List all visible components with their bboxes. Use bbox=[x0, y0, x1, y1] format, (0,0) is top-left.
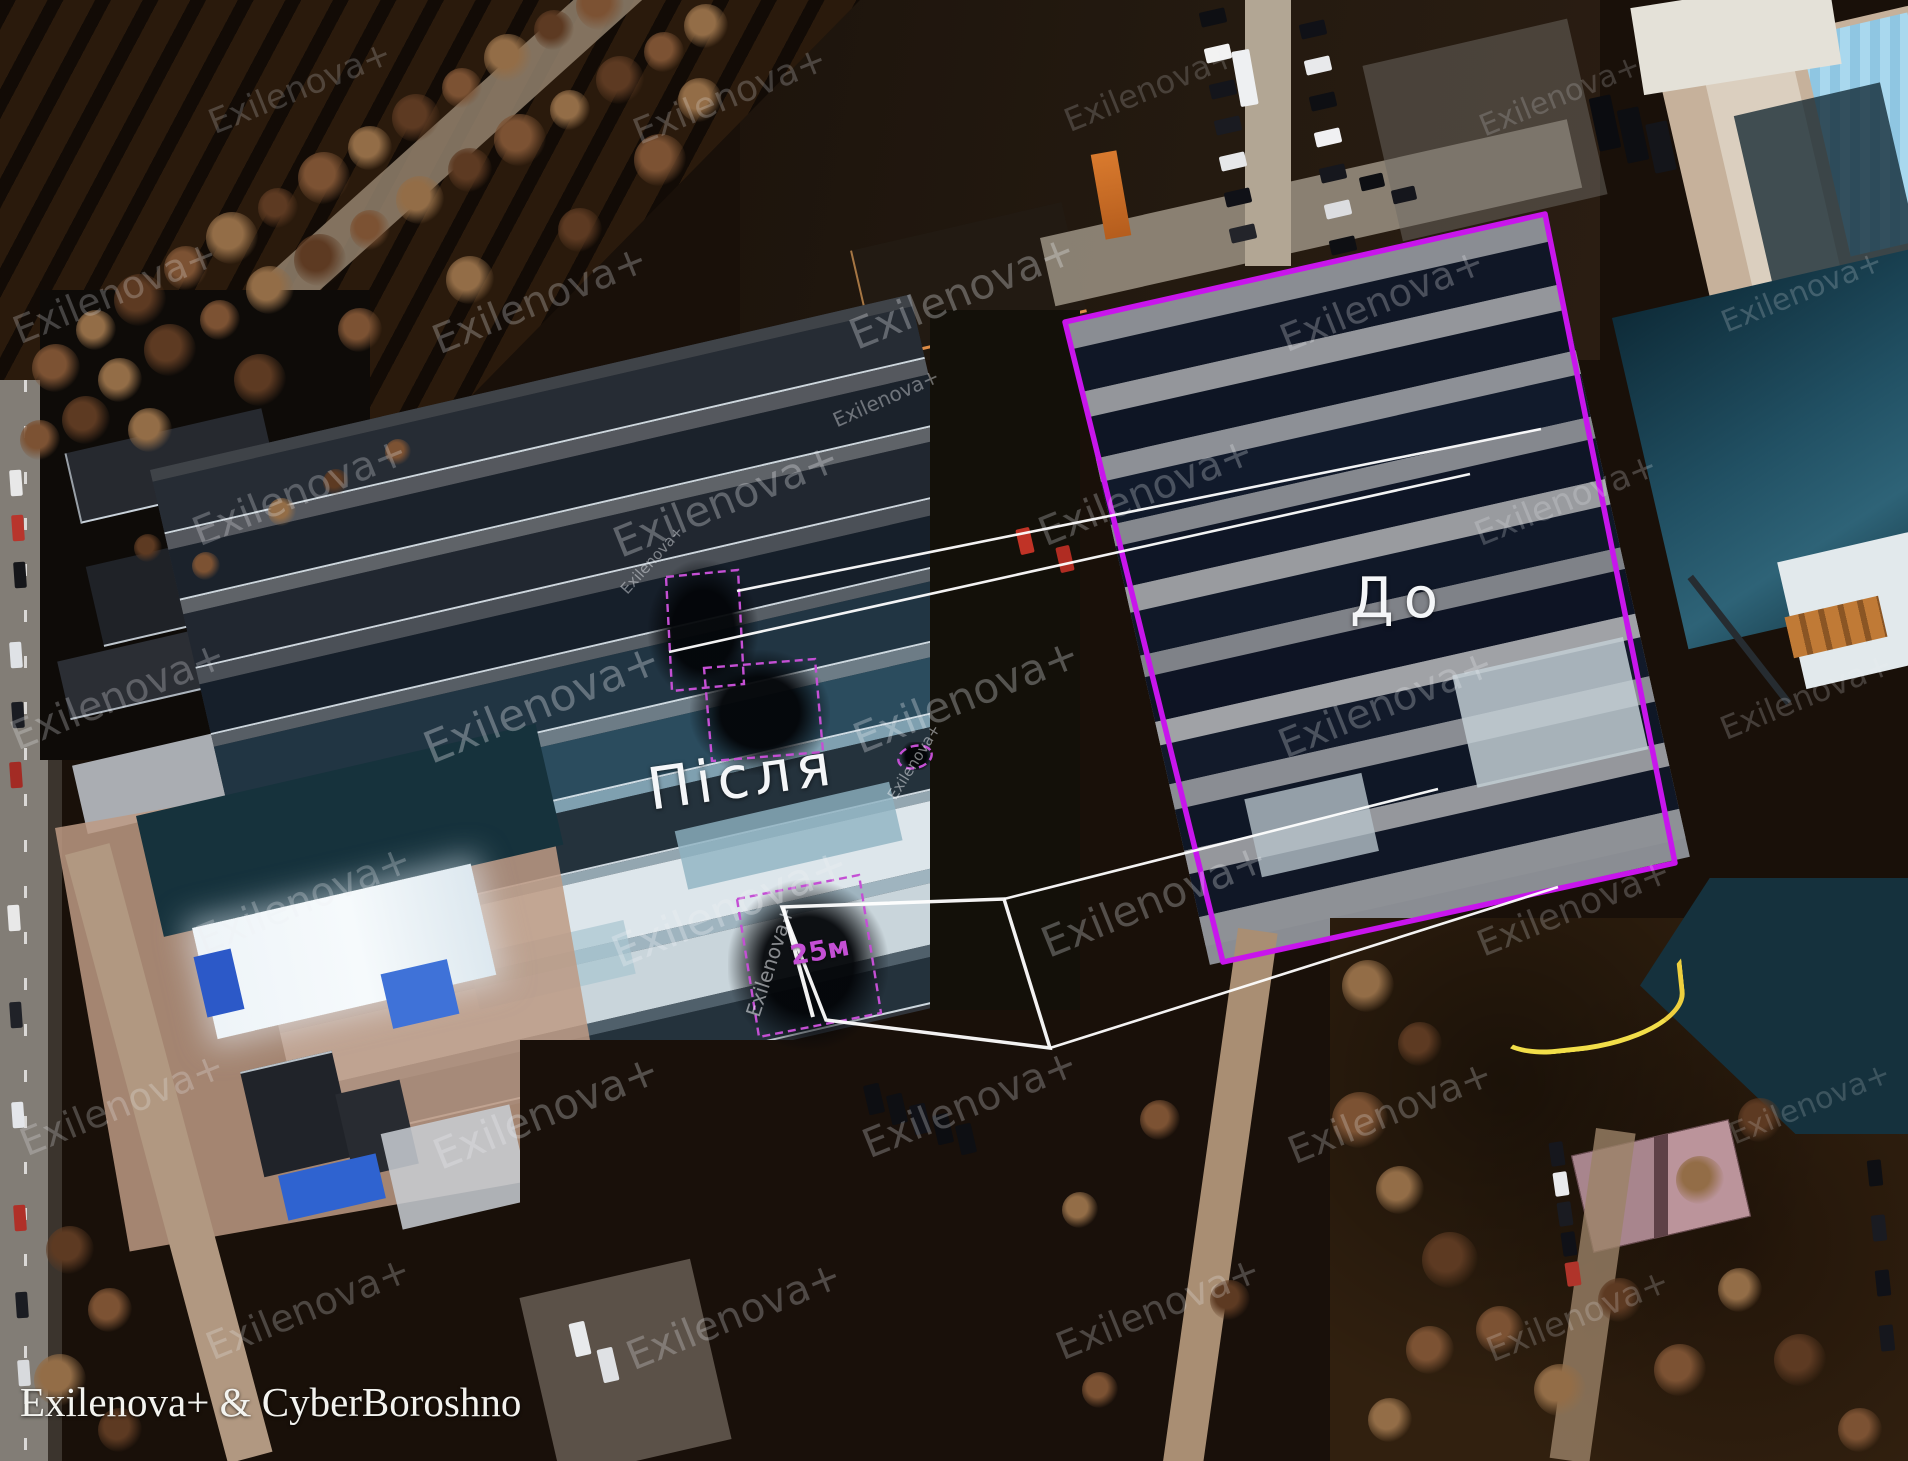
tree bbox=[644, 32, 684, 72]
tree bbox=[1718, 1268, 1762, 1312]
vehicle bbox=[9, 470, 23, 497]
tree bbox=[534, 10, 574, 50]
tree bbox=[128, 408, 172, 452]
vehicle bbox=[11, 1102, 25, 1129]
tree bbox=[323, 469, 349, 495]
tree bbox=[98, 358, 142, 402]
tree bbox=[1210, 1280, 1250, 1320]
tree bbox=[634, 134, 686, 186]
satellite-screenshot: { "labels": { "before": "До", "after": "… bbox=[0, 0, 1908, 1461]
tree bbox=[298, 152, 350, 204]
tree bbox=[1676, 1156, 1724, 1204]
tree bbox=[558, 208, 602, 252]
vehicle bbox=[9, 762, 23, 789]
tree bbox=[1774, 1334, 1826, 1386]
vehicle bbox=[1879, 1324, 1896, 1351]
tree bbox=[88, 1288, 132, 1332]
vehicle bbox=[9, 642, 23, 669]
tree bbox=[350, 210, 390, 250]
tree bbox=[1062, 1192, 1098, 1228]
tree bbox=[442, 68, 482, 108]
tree bbox=[200, 300, 240, 340]
vehicle bbox=[9, 1002, 23, 1029]
mid-yard bbox=[930, 310, 1080, 1010]
tree bbox=[268, 498, 296, 526]
vehicle bbox=[1875, 1269, 1892, 1296]
crater-mark bbox=[898, 742, 934, 770]
tree bbox=[234, 354, 286, 406]
tree bbox=[258, 188, 298, 228]
vehicle bbox=[1867, 1159, 1884, 1186]
vehicle bbox=[15, 1292, 29, 1319]
satellite-scene bbox=[0, 0, 1908, 1461]
vehicle bbox=[7, 905, 21, 932]
tree bbox=[114, 274, 166, 326]
tree bbox=[134, 534, 162, 562]
vehicle bbox=[11, 515, 25, 542]
tree bbox=[678, 78, 722, 122]
tree bbox=[1838, 1408, 1882, 1452]
tree bbox=[1598, 1278, 1642, 1322]
tree bbox=[20, 420, 60, 460]
tree bbox=[494, 114, 546, 166]
tree bbox=[294, 234, 346, 286]
tree bbox=[1082, 1372, 1118, 1408]
vehicle bbox=[1871, 1214, 1888, 1241]
tree bbox=[596, 56, 644, 104]
tree bbox=[164, 246, 208, 290]
tree bbox=[1342, 960, 1394, 1012]
tree bbox=[1534, 1364, 1586, 1416]
tree bbox=[392, 94, 440, 142]
tree bbox=[1140, 1100, 1180, 1140]
tree bbox=[1332, 1092, 1388, 1148]
tree bbox=[246, 266, 294, 314]
tree bbox=[1738, 1098, 1782, 1142]
tree bbox=[446, 256, 494, 304]
tree bbox=[338, 308, 382, 352]
tree bbox=[46, 1226, 94, 1274]
vehicle bbox=[13, 1205, 27, 1232]
tree bbox=[1376, 1166, 1424, 1214]
tree bbox=[76, 310, 116, 350]
tree bbox=[348, 126, 392, 170]
tree bbox=[144, 324, 196, 376]
credit-text: Exilenova+ & CyberBoroshno bbox=[20, 1378, 521, 1426]
tree bbox=[1654, 1344, 1706, 1396]
tree bbox=[1476, 1306, 1524, 1354]
tree bbox=[1398, 1022, 1442, 1066]
tree bbox=[192, 552, 220, 580]
tree bbox=[1406, 1326, 1454, 1374]
tree bbox=[1368, 1398, 1412, 1442]
before-label: До bbox=[1350, 566, 1448, 631]
tree bbox=[1422, 1232, 1478, 1288]
vehicle bbox=[11, 702, 25, 729]
tree bbox=[206, 212, 258, 264]
vehicle bbox=[13, 562, 27, 589]
tree bbox=[448, 148, 492, 192]
tree bbox=[484, 34, 532, 82]
tree bbox=[385, 439, 411, 465]
tree bbox=[32, 344, 80, 392]
tree bbox=[62, 396, 110, 444]
tree bbox=[684, 4, 728, 48]
tree bbox=[550, 90, 590, 130]
tree bbox=[396, 176, 444, 224]
